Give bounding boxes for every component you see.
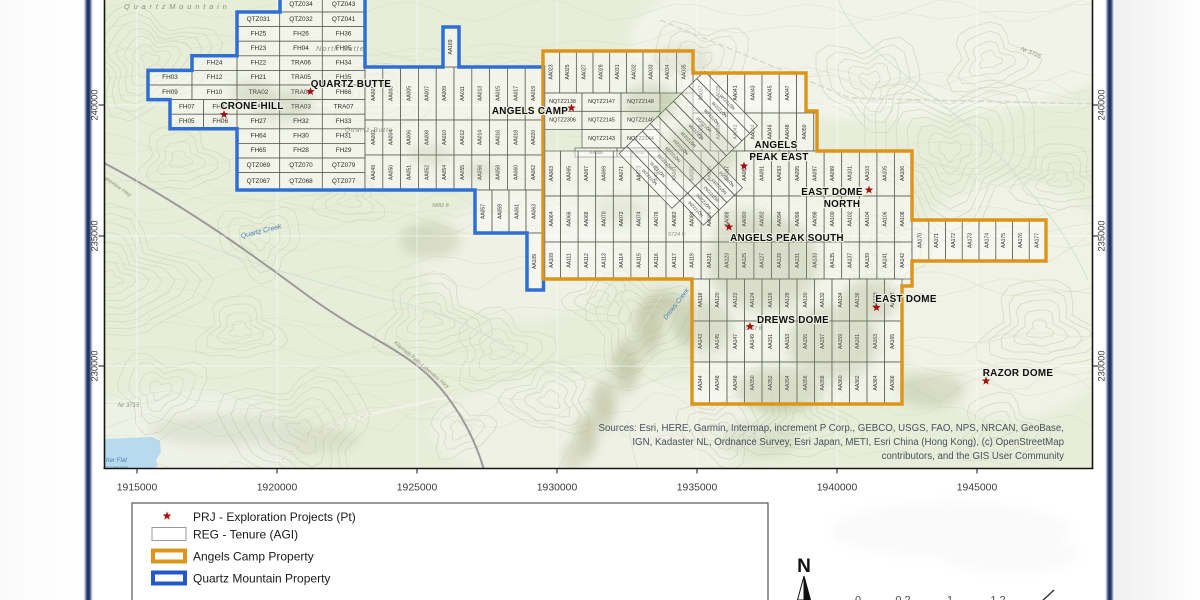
svg-text:5724 ft: 5724 ft — [668, 232, 685, 238]
svg-text:AA104: AA104 — [865, 211, 871, 226]
svg-text:FH10: FH10 — [207, 89, 223, 96]
svg-text:AA171: AA171 — [934, 233, 940, 248]
svg-text:FH33: FH33 — [336, 118, 352, 125]
svg-text:QTZ069: QTZ069 — [247, 162, 271, 169]
svg-text:AA009: AA009 — [442, 86, 448, 101]
svg-text:5882 ft: 5882 ft — [432, 203, 449, 209]
svg-text:AA074: AA074 — [637, 211, 643, 226]
svg-text:QTZ067: QTZ067 — [247, 178, 271, 185]
svg-text:AA060: AA060 — [513, 165, 519, 180]
svg-text:AA051: AA051 — [407, 165, 413, 180]
svg-text:AA142: AA142 — [900, 253, 906, 268]
svg-text:AA117: AA117 — [672, 253, 678, 268]
svg-text:PRJ - Exploration Projects (Pt: PRJ - Exploration Projects (Pt) — [193, 510, 356, 524]
svg-text:AA106: AA106 — [883, 211, 889, 226]
svg-text:AA057: AA057 — [481, 204, 487, 219]
svg-text:AA007: AA007 — [424, 86, 430, 101]
svg-text:QTZ031: QTZ031 — [247, 16, 271, 23]
svg-text:AA366: AA366 — [890, 375, 896, 390]
svg-text:NQTZ2145: NQTZ2145 — [588, 118, 615, 124]
svg-text:AA173: AA173 — [968, 233, 974, 248]
svg-text:CRONE HILL: CRONE HILL — [220, 101, 283, 112]
svg-text:NQTZ2147: NQTZ2147 — [588, 99, 615, 105]
svg-text:QTZ032: QTZ032 — [289, 16, 313, 23]
svg-text:AA095: AA095 — [795, 166, 801, 181]
svg-text:AA069: AA069 — [602, 166, 608, 181]
svg-text:AA132: AA132 — [820, 292, 826, 307]
svg-text:FH06: FH06 — [212, 118, 228, 125]
svg-text:230000: 230000 — [1097, 350, 1107, 381]
svg-text:AA113: AA113 — [602, 253, 608, 268]
svg-text:240000: 240000 — [1097, 89, 1107, 120]
svg-text:AA045: AA045 — [768, 85, 774, 100]
svg-text:AA048: AA048 — [785, 124, 791, 139]
svg-text:IGN, Kadaster NL, Ordnance Sur: IGN, Kadaster NL, Ordnance Survey, Esri … — [632, 437, 1064, 448]
svg-text:235000: 235000 — [90, 220, 100, 251]
svg-text:AA010: AA010 — [442, 130, 448, 145]
svg-text:AA062: AA062 — [531, 165, 537, 180]
svg-text:0.2: 0.2 — [895, 595, 910, 600]
svg-text:QTZ077: QTZ077 — [332, 178, 356, 185]
svg-text:FH65: FH65 — [251, 147, 267, 154]
svg-text:ANGELS PEAK SOUTH: ANGELS PEAK SOUTH — [730, 233, 844, 244]
svg-text:AA174: AA174 — [984, 233, 990, 248]
svg-text:Q u a r t z M o u n t a i n: Q u a r t z M o u n t a i n — [124, 2, 228, 11]
svg-text:AA119: AA119 — [689, 253, 695, 268]
svg-text:AA344: AA344 — [698, 375, 704, 390]
svg-text:FH07: FH07 — [179, 103, 195, 110]
svg-text:AA101: AA101 — [848, 166, 854, 181]
svg-text:AA047: AA047 — [785, 85, 791, 100]
svg-text:AA151: AA151 — [768, 334, 774, 349]
svg-text:AA364: AA364 — [873, 375, 879, 390]
svg-text:AA072: AA072 — [619, 211, 625, 226]
svg-text:FH25: FH25 — [251, 30, 267, 37]
svg-text:230000: 230000 — [90, 350, 100, 381]
svg-text:QTZ070: QTZ070 — [289, 162, 313, 169]
svg-text:AA137: AA137 — [848, 253, 854, 268]
svg-text:AA054: AA054 — [442, 165, 448, 180]
svg-text:FH23: FH23 — [251, 45, 267, 52]
svg-text:240000: 240000 — [90, 89, 100, 120]
svg-text:AA005: AA005 — [407, 86, 413, 101]
svg-text:ANGELS CAMP: ANGELS CAMP — [492, 106, 568, 117]
svg-text:AA169: AA169 — [448, 39, 454, 54]
svg-text:AA052: AA052 — [424, 165, 430, 180]
svg-text:FH28: FH28 — [293, 147, 309, 154]
svg-text:0: 0 — [855, 595, 861, 600]
svg-text:1930000: 1930000 — [537, 483, 578, 494]
svg-text:AA120: AA120 — [715, 292, 721, 307]
svg-text:FH05: FH05 — [179, 118, 195, 125]
svg-text:AA050: AA050 — [802, 124, 808, 139]
svg-text:Nr 3715: Nr 3715 — [118, 403, 140, 409]
svg-text:AA149: AA149 — [750, 334, 756, 349]
svg-text:AA170: AA170 — [917, 233, 923, 248]
svg-text:QTZ068: QTZ068 — [289, 178, 313, 185]
svg-text:FH30: FH30 — [293, 133, 309, 140]
svg-text:FH12: FH12 — [207, 74, 223, 81]
svg-text:AA015: AA015 — [496, 86, 502, 101]
svg-text:AA017: AA017 — [513, 86, 519, 101]
svg-text:AA097: AA097 — [812, 166, 818, 181]
svg-text:AA100: AA100 — [830, 211, 836, 226]
svg-text:AA020: AA020 — [531, 130, 537, 145]
svg-text:AA064: AA064 — [549, 211, 555, 226]
svg-text:AA050: AA050 — [389, 165, 395, 180]
svg-text:AA176: AA176 — [1018, 233, 1024, 248]
svg-text:NQTZ2143: NQTZ2143 — [588, 136, 615, 142]
svg-text:AA070: AA070 — [602, 211, 608, 226]
svg-text:TRA07: TRA07 — [334, 103, 354, 110]
svg-text:AA063: AA063 — [532, 204, 538, 219]
svg-text:AA139: AA139 — [865, 253, 871, 268]
svg-text:AA108: AA108 — [900, 211, 906, 226]
svg-text:REG - Tenure (AGI): REG - Tenure (AGI) — [193, 528, 298, 542]
svg-text:North Butte: North Butte — [316, 44, 365, 53]
svg-text:AA012: AA012 — [460, 130, 466, 145]
svg-text:EAST DOME: EAST DOME — [801, 187, 863, 198]
svg-text:AA105: AA105 — [883, 166, 889, 181]
svg-text:AA112: AA112 — [584, 253, 590, 268]
svg-text:ANGELS: ANGELS — [755, 140, 798, 151]
svg-text:FH34: FH34 — [336, 60, 352, 67]
svg-text:AA141: AA141 — [883, 253, 889, 268]
svg-text:AA063: AA063 — [549, 166, 555, 181]
svg-text:AA102: AA102 — [848, 211, 854, 226]
svg-text:QTZ079: QTZ079 — [332, 162, 356, 169]
svg-text:DREWS DOME: DREWS DOME — [757, 315, 829, 326]
svg-text:contributors, and the GIS User: contributors, and the GIS User Community — [881, 451, 1064, 462]
svg-text:AA019: AA019 — [531, 86, 537, 101]
svg-text:AA115: AA115 — [637, 253, 643, 268]
svg-text:FH64: FH64 — [251, 133, 267, 140]
svg-text:AA016: AA016 — [496, 130, 502, 145]
svg-text:AA031: AA031 — [615, 64, 621, 79]
svg-text:RAZOR DOME: RAZOR DOME — [983, 368, 1054, 379]
svg-text:AA043: AA043 — [750, 85, 756, 100]
svg-text:EAST DOME: EAST DOME — [875, 294, 937, 305]
svg-text:FH32: FH32 — [293, 118, 309, 125]
svg-text:PEAK EAST: PEAK EAST — [749, 152, 808, 163]
svg-text:FH29: FH29 — [336, 147, 352, 154]
svg-text:Sources: Esri, HERE, Garmin, I: Sources: Esri, HERE, Garmin, Intermap, i… — [598, 423, 1064, 434]
svg-text:AA008: AA008 — [424, 130, 430, 145]
svg-text:AA177: AA177 — [1035, 233, 1041, 248]
svg-text:AA109: AA109 — [532, 254, 538, 269]
svg-text:AA061: AA061 — [515, 204, 521, 219]
svg-text:AA106: AA106 — [900, 166, 906, 181]
svg-text:FH04: FH04 — [293, 45, 309, 52]
svg-text:1: 1 — [947, 595, 953, 600]
svg-text:NORTH: NORTH — [824, 199, 861, 210]
svg-text:AA103: AA103 — [865, 166, 871, 181]
svg-text:FH24: FH24 — [207, 60, 223, 67]
svg-text:AA165: AA165 — [890, 334, 896, 349]
svg-text:AA135: AA135 — [830, 253, 836, 268]
svg-text:1935000: 1935000 — [677, 483, 718, 494]
svg-text:1925000: 1925000 — [397, 483, 438, 494]
svg-text:Quartz Butte: Quartz Butte — [345, 127, 394, 134]
svg-text:NQTZ2138: NQTZ2138 — [549, 99, 576, 105]
svg-text:AA006: AA006 — [407, 130, 413, 145]
svg-text:NQTZ2306: NQTZ2306 — [549, 118, 576, 124]
svg-text:AA018: AA018 — [513, 130, 519, 145]
svg-text:FH21: FH21 — [251, 74, 267, 81]
svg-text:AA027: AA027 — [582, 64, 588, 79]
svg-text:FH22: FH22 — [251, 60, 267, 67]
svg-text:FH26: FH26 — [293, 30, 309, 37]
svg-text:AA065: AA065 — [566, 166, 572, 181]
svg-text:FH09: FH09 — [162, 89, 178, 96]
svg-text:FH36: FH36 — [336, 30, 352, 37]
svg-text:AA041: AA041 — [733, 85, 739, 100]
svg-text:AA067: AA067 — [584, 166, 590, 181]
svg-text:TRA06: TRA06 — [291, 60, 311, 67]
svg-text:1940000: 1940000 — [817, 483, 858, 494]
svg-text:AA091: AA091 — [760, 166, 766, 181]
svg-text:AA114: AA114 — [619, 253, 625, 268]
svg-text:AA029: AA029 — [598, 64, 604, 79]
svg-text:AA098: AA098 — [812, 211, 818, 226]
svg-text:235000: 235000 — [1097, 220, 1107, 251]
svg-text:AA109: AA109 — [549, 253, 555, 268]
svg-text:AA059: AA059 — [498, 204, 504, 219]
svg-text:AA175: AA175 — [1001, 233, 1007, 248]
svg-text:N: N — [797, 556, 811, 577]
svg-text:QTZ041: QTZ041 — [332, 16, 356, 23]
svg-text:FH03: FH03 — [162, 74, 178, 81]
svg-text:QUARTZ BUTTE: QUARTZ BUTTE — [311, 79, 392, 90]
svg-text:FH27: FH27 — [251, 118, 267, 125]
svg-text:her Flat: her Flat — [106, 457, 127, 464]
svg-text:AA014: AA014 — [478, 130, 484, 145]
svg-text:AA346: AA346 — [715, 375, 721, 390]
svg-text:AA116: AA116 — [654, 253, 660, 268]
svg-text:AA076: AA076 — [654, 211, 660, 226]
svg-text:1915000: 1915000 — [117, 483, 158, 494]
svg-text:AA093: AA093 — [777, 166, 783, 181]
svg-text:QTZ034: QTZ034 — [289, 1, 313, 8]
svg-text:AA032: AA032 — [632, 64, 638, 79]
svg-text:TRA05: TRA05 — [291, 74, 311, 81]
svg-text:AA049: AA049 — [371, 165, 377, 180]
svg-text:AA066: AA066 — [566, 211, 572, 226]
svg-text:QTZ043: QTZ043 — [332, 1, 356, 8]
svg-text:1.2: 1.2 — [990, 595, 1005, 600]
svg-text:AA068: AA068 — [584, 211, 590, 226]
svg-text:AA172: AA172 — [951, 233, 957, 248]
svg-text:5657 ft: 5657 ft — [745, 326, 762, 332]
svg-text:AA011: AA011 — [460, 86, 466, 101]
svg-text:Angels Camp Property: Angels Camp Property — [193, 550, 314, 564]
svg-text:1945000: 1945000 — [957, 483, 998, 494]
svg-text:AA082: AA082 — [672, 211, 678, 226]
svg-text:AA013: AA013 — [478, 86, 484, 101]
svg-text:Quartz Mountain Property: Quartz Mountain Property — [193, 572, 330, 586]
svg-text:AA025: AA025 — [565, 64, 571, 79]
svg-text:AA111: AA111 — [566, 253, 572, 267]
svg-text:AA023: AA023 — [548, 64, 554, 79]
svg-text:1920000: 1920000 — [257, 483, 298, 494]
svg-text:AA099: AA099 — [830, 166, 836, 181]
svg-text:AA071: AA071 — [619, 166, 625, 181]
svg-text:AA046: AA046 — [768, 124, 774, 139]
